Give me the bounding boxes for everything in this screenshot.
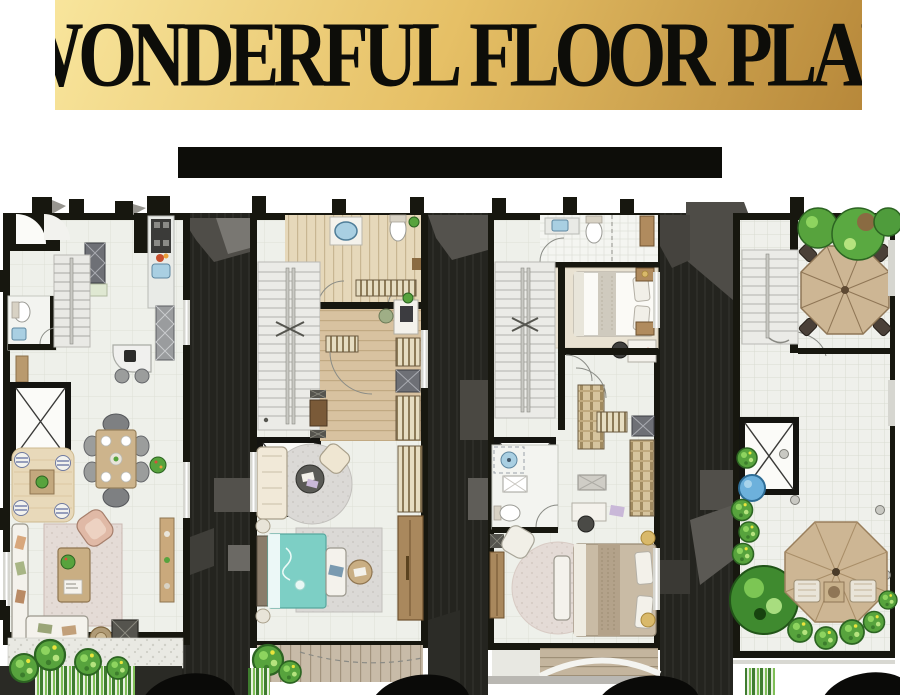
- sink-icon: [12, 328, 26, 340]
- sink-icon: [335, 222, 357, 240]
- floor-plan-roof: [730, 197, 900, 695]
- bathroom-3f-top: [540, 215, 658, 268]
- toilet-icon: [586, 221, 602, 243]
- dresser: [597, 412, 627, 432]
- toilet-icon: [500, 505, 520, 521]
- wardrobe: [630, 440, 654, 516]
- stool-icon: [135, 369, 149, 383]
- floor-plans-canvas: [0, 195, 900, 695]
- potted-plant-icon: [150, 457, 166, 473]
- bed-bench: [554, 556, 570, 620]
- stairs-3f: [495, 262, 555, 418]
- cabinet: [310, 400, 327, 426]
- gap-column-2: [428, 213, 488, 695]
- bedside-lamp-icon: [641, 531, 655, 545]
- console-table: [16, 356, 28, 382]
- title-banner: WONDERFUL FLOOR PLAN: [55, 0, 862, 110]
- closet-icon: [326, 336, 358, 352]
- plant-icon: [409, 217, 419, 227]
- floor-badge: [816, 665, 900, 695]
- bathroom-3f-mid: [492, 445, 558, 533]
- nightstand: [636, 322, 654, 335]
- pillow: [635, 551, 654, 584]
- wall-stubs-top-1: [32, 196, 170, 215]
- subtitle-bar: [178, 147, 722, 178]
- stairs-roof: [742, 250, 798, 344]
- kitchen-sink-icon: [152, 264, 170, 278]
- tea-corner: [12, 448, 74, 522]
- pond-icon: [739, 475, 765, 501]
- bedside-lamp-icon: [641, 613, 655, 627]
- bathroom-1f: [8, 296, 56, 350]
- wall-stubs-top-3: [492, 197, 634, 215]
- wall-stubs-top-2: [252, 196, 424, 215]
- elevator-1f: [13, 385, 68, 458]
- page-title: WONDERFUL FLOOR PLAN: [55, 9, 862, 102]
- lounger: [794, 580, 820, 602]
- headboard: [257, 536, 269, 606]
- stairs-1f: [54, 255, 90, 347]
- lounger: [850, 580, 876, 602]
- sofa: [257, 447, 287, 519]
- wardrobe: [398, 446, 422, 512]
- fruit-bowl-icon: [156, 254, 164, 262]
- bedside-lamp-icon: [256, 609, 270, 623]
- computer-icon: [400, 306, 413, 322]
- vanity-chair-icon: [578, 516, 594, 532]
- bedside-lamp-icon: [256, 519, 270, 533]
- sink-icon: [552, 220, 568, 231]
- gap-column-1: [182, 213, 250, 695]
- stool-icon: [115, 369, 129, 383]
- desk-chair-icon: [379, 309, 393, 323]
